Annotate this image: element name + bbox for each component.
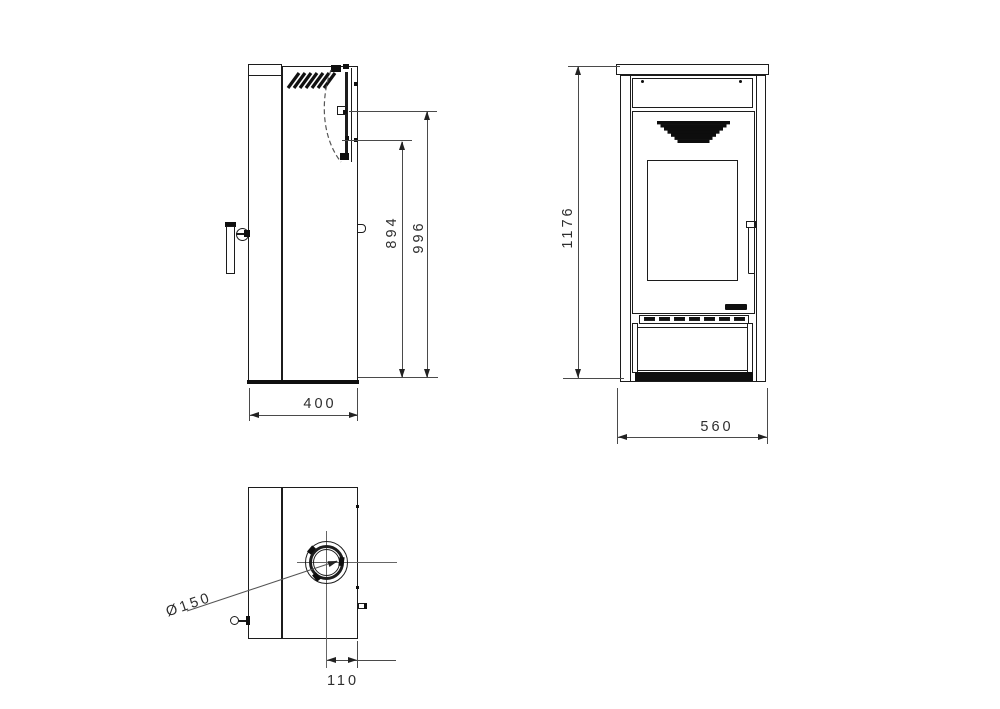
warm-air-grille: [657, 121, 730, 143]
flue-collar-lugs: [307, 545, 345, 581]
drawing-overlay: [0, 0, 1000, 709]
flue-diameter-leader: [187, 561, 338, 611]
technical-drawing-canvas: 894 996 400: [0, 0, 1000, 709]
